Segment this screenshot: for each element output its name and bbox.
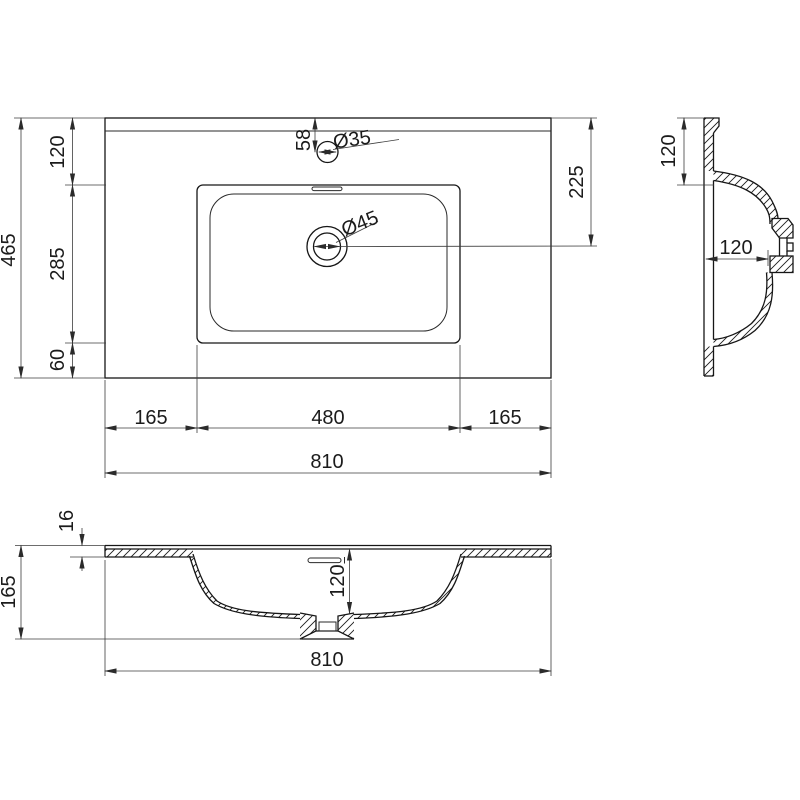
- dim-front-overall-height-label: 165: [0, 575, 20, 608]
- dim-left-margin-label: 165: [134, 407, 167, 429]
- dim-basin-depth-label: 285: [47, 247, 69, 280]
- dim-drain-from-back: 225: [551, 118, 597, 246]
- front-section-view: 16 165 120 810: [0, 510, 551, 676]
- dim-faucet-offset-label: 58: [293, 129, 315, 151]
- dim-drain-from-back-label: 225: [566, 165, 588, 198]
- side-back-margin-hatch: [704, 118, 719, 171]
- dim-front-overall-width-label: 810: [310, 649, 343, 671]
- plan-view: Ø35 58 Ø45 225 120: [0, 118, 597, 478]
- front-slab-right-hatch: [461, 549, 551, 557]
- basin-rim-outline: [197, 185, 460, 343]
- side-section-view: 120 120: [658, 118, 793, 376]
- dim-overall-depth-label: 465: [0, 233, 20, 266]
- dim-back-margin-label: 120: [47, 135, 69, 168]
- front-overflow-slot: [308, 558, 341, 563]
- dim-overall-width-label: 810: [310, 451, 343, 473]
- dim-right-margin-label: 165: [488, 407, 521, 429]
- front-slab-left-hatch: [105, 549, 193, 557]
- dim-front-bowl-depth-label: 120: [327, 564, 349, 597]
- dim-front-top-thickness-label: 16: [56, 510, 78, 532]
- dim-faucet-diameter-label: Ø35: [332, 126, 373, 153]
- dim-side-bowl-depth-label: 120: [719, 237, 752, 259]
- dim-basin-width-label: 480: [311, 407, 344, 429]
- countertop-outline: [105, 118, 551, 378]
- side-bowl-wall-hatch: [714, 273, 773, 347]
- dim-front-top-thickness: 16: [56, 510, 105, 571]
- dim-depth-chain: 120 285 60 465: [0, 118, 106, 378]
- side-trap-lower-hatch: [770, 256, 793, 273]
- dim-drain-diameter: Ø45: [315, 207, 598, 247]
- technical-drawing: Ø35 58 Ø45 225 120: [0, 0, 800, 800]
- dim-faucet-offset: 58: [293, 118, 315, 152]
- side-front-margin-hatch: [704, 347, 714, 377]
- dim-width-chain: 165 480 165 810: [105, 345, 551, 478]
- drain-centerline: [340, 246, 598, 247]
- basin-bottom-outline: [210, 194, 447, 331]
- drawing-sheet: Ø35 58 Ø45 225 120: [0, 0, 800, 800]
- dim-side-back-margin-label: 120: [658, 134, 680, 167]
- dim-front-margin-label: 60: [47, 349, 69, 371]
- dim-side-bowl-depth: 120: [706, 237, 768, 266]
- overflow-slot: [312, 187, 342, 191]
- dim-front-bowl-depth: 120: [327, 549, 350, 614]
- dim-front-overall-height: 165: [0, 546, 302, 640]
- dim-drain-diameter-label: Ø45: [338, 207, 381, 242]
